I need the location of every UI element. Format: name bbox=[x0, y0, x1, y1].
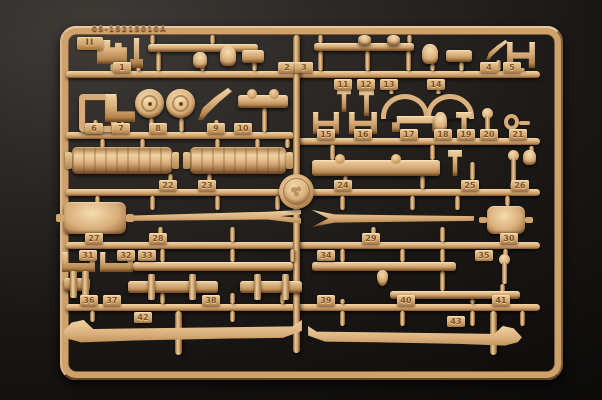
part-number-tag: 29 bbox=[362, 233, 380, 244]
part-number-tag: 2 bbox=[278, 62, 296, 73]
part-number-tag: 41 bbox=[492, 295, 510, 306]
mold-position-mark: II bbox=[77, 37, 103, 50]
sprue-stub bbox=[406, 51, 411, 71]
sprue-stub bbox=[455, 196, 460, 210]
part-knob bbox=[193, 52, 207, 68]
part-ringpin bbox=[504, 114, 530, 130]
sprue-stub bbox=[440, 249, 445, 262]
part-knob bbox=[220, 46, 236, 66]
mold-code-text: 05-15215010A bbox=[92, 25, 167, 33]
part-number-tag: 40 bbox=[397, 295, 415, 306]
part-number-tag: 24 bbox=[334, 180, 352, 191]
sprue-stub bbox=[470, 311, 475, 326]
part-axle bbox=[64, 278, 90, 291]
sprue-stub bbox=[230, 311, 235, 322]
part-number-tag: 22 bbox=[159, 180, 177, 191]
part-number-tag: 39 bbox=[317, 295, 335, 306]
sprue-stub bbox=[420, 176, 425, 189]
part-disc bbox=[166, 89, 195, 118]
sprue-stub bbox=[262, 108, 267, 132]
sprue-stub bbox=[400, 249, 405, 262]
part-number-tag: 31 bbox=[79, 250, 97, 261]
part-number-tag: 35 bbox=[475, 250, 493, 261]
part-cylinder bbox=[72, 147, 172, 174]
part-number-tag: 18 bbox=[434, 129, 452, 140]
part-barrel bbox=[64, 202, 126, 234]
part-knob bbox=[422, 44, 438, 64]
sprue-stub bbox=[430, 145, 435, 160]
sprue-stub bbox=[275, 196, 280, 210]
part-number-tag: 10 bbox=[234, 123, 252, 134]
part-number-tag: 17 bbox=[400, 129, 418, 140]
part-number-tag: 26 bbox=[511, 180, 529, 191]
part-number-tag: 23 bbox=[198, 180, 216, 191]
part-linkage bbox=[238, 95, 288, 108]
part-number-tag: 25 bbox=[461, 180, 479, 191]
part-number-tag: 12 bbox=[357, 79, 375, 90]
sprue-stub bbox=[400, 311, 405, 326]
sprue-stub bbox=[440, 227, 445, 242]
part-axle bbox=[128, 281, 218, 293]
sprue-stub bbox=[179, 118, 184, 132]
part-assembly bbox=[446, 50, 472, 62]
sprue-stub bbox=[136, 68, 141, 71]
part-balllever bbox=[505, 152, 521, 182]
part-number-tag: 32 bbox=[117, 250, 135, 261]
part-linkage bbox=[312, 160, 440, 176]
sprue-stub bbox=[230, 249, 235, 262]
sprue-stub bbox=[215, 196, 220, 210]
sprue-stub bbox=[430, 64, 435, 71]
sprue-stub bbox=[318, 35, 323, 43]
part-number-tag: 13 bbox=[380, 79, 398, 90]
part-number-tag: 5 bbox=[503, 62, 521, 73]
part-assembly bbox=[242, 50, 264, 63]
sprue-stub bbox=[318, 51, 323, 71]
sprue-stub bbox=[520, 311, 525, 326]
part-number-tag: 9 bbox=[207, 123, 225, 134]
part-number-tag: 20 bbox=[480, 129, 498, 140]
sprue-stub bbox=[210, 35, 215, 44]
part-barrel bbox=[487, 206, 525, 234]
sprue-stub bbox=[150, 35, 155, 44]
sprue-stub bbox=[410, 196, 415, 210]
sprue-stub bbox=[160, 293, 165, 304]
sprue-photo: 1234567891011121314151617181920212223242… bbox=[0, 0, 602, 400]
sprue-stub bbox=[150, 196, 155, 210]
part-number-tag: 19 bbox=[457, 129, 475, 140]
sprue-stub bbox=[365, 51, 370, 71]
sprue-stub bbox=[340, 249, 345, 262]
sprue-stub bbox=[230, 227, 235, 242]
part-knob bbox=[523, 150, 536, 165]
part-number-tag: 1 bbox=[113, 62, 131, 73]
part-cylinder bbox=[190, 147, 286, 174]
sprue-stub bbox=[407, 35, 412, 43]
part-axle bbox=[240, 281, 302, 293]
part-number-tag: 21 bbox=[509, 129, 527, 140]
sprue-frame bbox=[60, 26, 563, 380]
part-number-tag: 37 bbox=[103, 295, 121, 306]
part-number-tag: 8 bbox=[149, 123, 167, 134]
sprue-stub bbox=[505, 196, 510, 206]
part-number-tag: 4 bbox=[480, 62, 498, 73]
part-knob bbox=[358, 35, 371, 45]
sprue-stub bbox=[340, 196, 345, 210]
sprue-stub bbox=[230, 293, 235, 304]
sprue-stub bbox=[340, 299, 345, 304]
part-balllever bbox=[497, 256, 511, 284]
part-number-tag: 11 bbox=[334, 79, 352, 90]
sprue-runner bbox=[66, 304, 540, 311]
part-number-tag: 7 bbox=[112, 123, 130, 134]
sprue-stub bbox=[340, 311, 345, 326]
part-bar bbox=[133, 262, 293, 271]
part-number-tag: 43 bbox=[447, 316, 465, 327]
sprue-medallion bbox=[279, 174, 314, 209]
part-number-tag: 15 bbox=[317, 129, 335, 140]
part-number-tag: 30 bbox=[500, 233, 518, 244]
sprue-stub bbox=[389, 90, 394, 94]
part-number-tag: 33 bbox=[138, 250, 156, 261]
part-number-tag: 38 bbox=[202, 295, 220, 306]
part-number-tag: 28 bbox=[149, 233, 167, 244]
part-disc bbox=[135, 89, 164, 118]
part-number-tag: 3 bbox=[295, 62, 313, 73]
part-number-tag: 34 bbox=[317, 250, 335, 261]
sprue-stub bbox=[440, 271, 445, 291]
part-number-tag: 14 bbox=[427, 79, 445, 90]
part-number-tag: 42 bbox=[134, 312, 152, 323]
sprue-stub bbox=[470, 299, 475, 304]
sprue-stub bbox=[156, 52, 161, 71]
part-number-tag: 36 bbox=[80, 295, 98, 306]
part-knob bbox=[387, 35, 400, 45]
sprue-stub bbox=[285, 139, 290, 148]
sprue-stub bbox=[436, 90, 441, 94]
sprue-stub bbox=[90, 311, 95, 322]
sprue-stub bbox=[459, 62, 464, 71]
sprue-stub bbox=[160, 249, 165, 262]
sprue-stub bbox=[470, 162, 475, 180]
sprue-runner bbox=[66, 242, 540, 249]
part-number-tag: 16 bbox=[354, 129, 372, 140]
sprue-stub bbox=[290, 249, 295, 262]
part-number-tag: 27 bbox=[85, 233, 103, 244]
part-number-tag: 6 bbox=[85, 123, 103, 134]
